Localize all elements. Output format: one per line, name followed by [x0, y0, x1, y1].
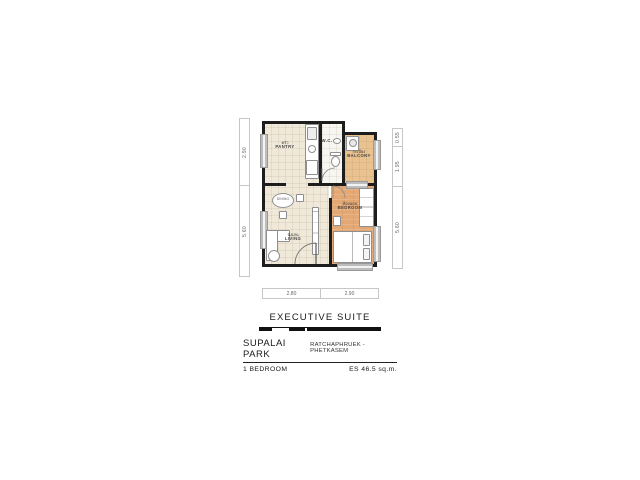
bedside-table [333, 216, 341, 226]
unit-row: 1 BEDROOM ES 46.5 sq.m. [243, 363, 397, 373]
dim-left-segment: 2.90 [240, 119, 249, 186]
living-label: นั่งเล่น LIVING [278, 233, 308, 242]
bedroom-window-bottom [337, 263, 373, 271]
dim-right-3: 5.60 [395, 222, 401, 233]
dining-chair-1 [296, 194, 304, 202]
graphic-scale-bar [259, 327, 381, 333]
dim-left-1: 2.90 [242, 147, 248, 158]
unit-type: 1 BEDROOM [243, 366, 287, 373]
pillow-1 [363, 234, 370, 246]
dim-right-segment: 0.55 [393, 129, 402, 147]
living-label-en: LIVING [278, 237, 308, 242]
wc-door-arc [321, 167, 336, 182]
dim-right-2: 1.95 [395, 161, 401, 172]
dim-bottom-1: 2.80 [287, 291, 297, 297]
wall-bedroom-left [329, 198, 332, 264]
project-name: SUPALAI PARK [243, 338, 310, 360]
wall-balcony-top [343, 132, 377, 135]
side-table-round [268, 250, 280, 262]
wall-top [262, 121, 345, 124]
dimension-bar-right: 0.55 1.95 5.60 [392, 128, 403, 269]
title-block: EXECUTIVE SUITE SUPALAI PARK RATCHAPHRUE… [243, 312, 397, 373]
unit-title: EXECUTIVE SUITE [243, 312, 397, 323]
entry-door-arc [294, 242, 317, 265]
dim-left-segment: 5.60 [240, 186, 249, 276]
dim-bottom-2: 2.90 [345, 291, 355, 297]
bedroom-label: ห้องนอน BEDROOM [333, 202, 367, 211]
pantry-label-en: PANTRY [264, 145, 306, 150]
dim-bottom-segment: 2.80 [263, 289, 321, 298]
dim-right-segment: 5.60 [393, 187, 402, 268]
dim-bottom-segment: 2.90 [321, 289, 378, 298]
dimension-bar-bottom: 2.80 2.90 [262, 288, 379, 299]
dim-right-segment: 1.95 [393, 147, 402, 187]
scale-bar-segment [259, 328, 272, 331]
balcony-window [373, 140, 381, 170]
scale-bar-segment [307, 328, 381, 331]
pantry-label: ครัว PANTRY [264, 141, 306, 150]
wall-mid-b [308, 183, 332, 186]
unit-area: ES 46.5 sq.m. [349, 366, 397, 373]
dining-label: DINING [272, 198, 294, 202]
balcony-label: ระเบียง BALCONY [344, 150, 374, 159]
dim-right-1: 0.55 [395, 132, 401, 143]
floorplan-sheet: ครัว PANTRY W.C. ระเบียง BALCONY DINING … [0, 0, 640, 480]
dining-label-en: DINING [277, 197, 289, 201]
kitchen-sink-icon [308, 145, 316, 153]
toilet-bowl-icon [331, 156, 340, 167]
washbasin-icon [333, 138, 341, 144]
dining-chair-2 [279, 211, 287, 219]
project-row: SUPALAI PARK RATCHAPHRUEK - PHETKASEM [243, 338, 397, 363]
pantry-window [260, 134, 268, 168]
pillow-2 [363, 248, 370, 260]
bedroom-door-arc [332, 185, 346, 199]
dim-left-2: 5.60 [242, 226, 248, 237]
wall-mid-a [264, 183, 286, 186]
wc-label-en: W.C. [320, 139, 334, 144]
pantry-cabinet [306, 160, 318, 175]
stove-icon [307, 127, 317, 140]
bedroom-window-right [373, 226, 381, 262]
wc-label: W.C. [320, 139, 334, 144]
blanket-fold-line [352, 232, 353, 262]
scale-bar-segment [289, 328, 305, 331]
dimension-bar-left: 2.90 5.60 [239, 118, 250, 277]
washing-machine-drum [349, 139, 357, 147]
bedroom-label-en: BEDROOM [333, 206, 367, 211]
project-location: RATCHAPHRUEK - PHETKASEM [310, 342, 397, 354]
balcony-label-en: BALCONY [344, 154, 374, 159]
